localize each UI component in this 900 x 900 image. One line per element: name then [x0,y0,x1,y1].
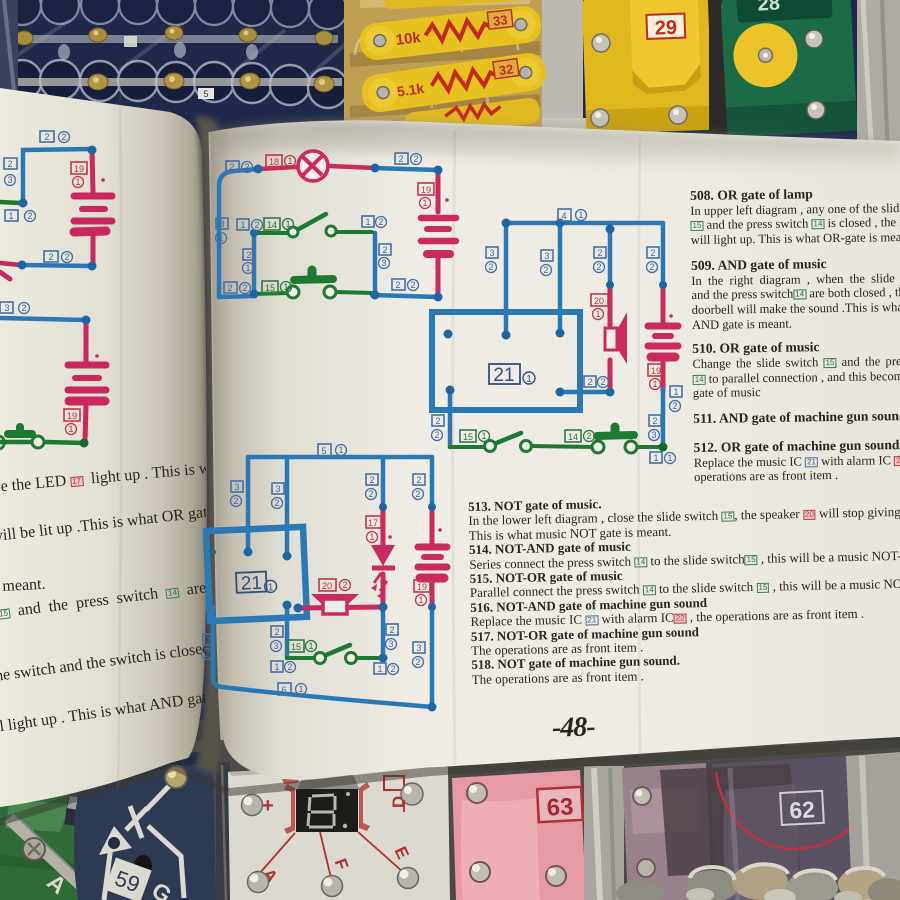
svg-text:2: 2 [413,154,418,164]
svg-text:3: 3 [219,219,224,229]
svg-text:2: 2 [596,262,601,272]
svg-text:1: 1 [526,374,532,385]
svg-text:2: 2 [287,662,292,672]
svg-text:2: 2 [415,657,420,667]
svg-text:1: 1 [308,641,313,651]
svg-text:20: 20 [322,581,332,591]
svg-text:2: 2 [586,431,591,441]
svg-text:2: 2 [229,162,234,172]
svg-text:21: 21 [493,365,514,386]
svg-text:2: 2 [587,377,592,387]
svg-text:19: 19 [651,366,661,376]
svg-text:2: 2 [389,625,394,635]
svg-text:33: 33 [492,12,508,29]
svg-text:2: 2 [242,283,247,293]
svg-text:1: 1 [653,453,658,463]
svg-text:1: 1 [218,233,223,243]
svg-text:2: 2 [395,280,400,290]
svg-text:2: 2 [254,220,259,230]
svg-text:2: 2 [652,416,657,426]
svg-text:2: 2 [382,245,387,255]
svg-text:1: 1 [595,309,600,319]
svg-text:1: 1 [240,220,245,230]
svg-text:2: 2 [543,265,548,275]
svg-text:32: 32 [498,61,514,78]
svg-text:2: 2 [649,262,654,272]
svg-text:2: 2 [398,154,403,164]
svg-text:2: 2 [435,416,440,426]
svg-text:2: 2 [415,489,420,499]
svg-text:2: 2 [274,627,279,637]
svg-text:2: 2 [244,162,249,172]
svg-text:2: 2 [597,248,602,258]
svg-text:1: 1 [283,282,288,292]
svg-text:1: 1 [422,198,427,208]
svg-text:1: 1 [365,217,370,227]
svg-text:10k: 10k [395,29,422,49]
svg-text:3: 3 [388,639,393,649]
svg-text:1: 1 [667,453,672,463]
svg-text:2: 2 [434,430,439,440]
svg-text:1: 1 [418,595,423,605]
svg-text:3: 3 [489,248,494,258]
svg-text:1: 1 [652,379,657,389]
svg-text:62: 62 [789,796,816,823]
svg-text:1: 1 [578,210,583,220]
svg-text:+: + [262,795,274,817]
svg-text:18: 18 [269,157,279,167]
svg-text:1: 1 [338,445,343,455]
svg-text:3: 3 [381,258,386,268]
svg-text:2: 2 [368,489,373,499]
svg-text:1: 1 [274,662,279,672]
svg-text:19: 19 [421,185,431,195]
svg-text:3: 3 [275,484,280,494]
svg-text:17: 17 [368,518,378,528]
svg-text:14: 14 [267,220,277,230]
svg-text:29: 29 [654,17,677,40]
svg-text:19: 19 [417,582,427,592]
svg-text:2: 2 [410,280,415,290]
svg-text:2: 2 [672,401,677,411]
svg-text:21: 21 [240,573,262,595]
svg-text:2: 2 [274,498,279,508]
svg-text:6: 6 [281,685,286,695]
svg-text:2: 2 [390,664,395,674]
svg-text:2: 2 [342,580,347,590]
svg-text:3: 3 [544,251,549,261]
svg-text:2: 2 [600,377,605,387]
svg-text:2: 2 [227,283,232,293]
svg-text:1: 1 [285,219,290,229]
svg-text:2: 2 [650,248,655,258]
svg-text:5: 5 [321,446,326,456]
svg-text:3: 3 [234,482,239,492]
svg-text:2: 2 [369,475,374,485]
svg-text:3: 3 [205,635,210,645]
svg-text:2: 2 [233,496,238,506]
svg-text:1: 1 [298,684,303,694]
svg-text:63: 63 [546,793,574,821]
svg-text:1: 1 [287,156,292,166]
svg-text:2: 2 [488,262,493,272]
svg-text:1: 1 [377,664,382,674]
svg-text:3: 3 [416,643,421,653]
svg-text:14: 14 [568,432,578,442]
svg-text:15: 15 [463,432,473,442]
svg-text:2: 2 [246,250,251,260]
svg-text:2: 2 [416,475,421,485]
svg-text:2: 2 [378,217,383,227]
svg-text:1: 1 [369,532,374,542]
svg-text:28: 28 [757,0,780,16]
svg-text:1: 1 [673,387,678,397]
svg-text:1: 1 [245,263,250,273]
svg-text:3: 3 [273,641,278,651]
svg-text:1: 1 [481,431,486,441]
svg-text:4: 4 [561,211,566,221]
svg-text:15: 15 [291,642,301,652]
svg-text:1: 1 [268,582,274,593]
svg-text:20: 20 [594,296,604,306]
svg-text:15: 15 [265,283,275,293]
svg-text:3: 3 [651,430,656,440]
